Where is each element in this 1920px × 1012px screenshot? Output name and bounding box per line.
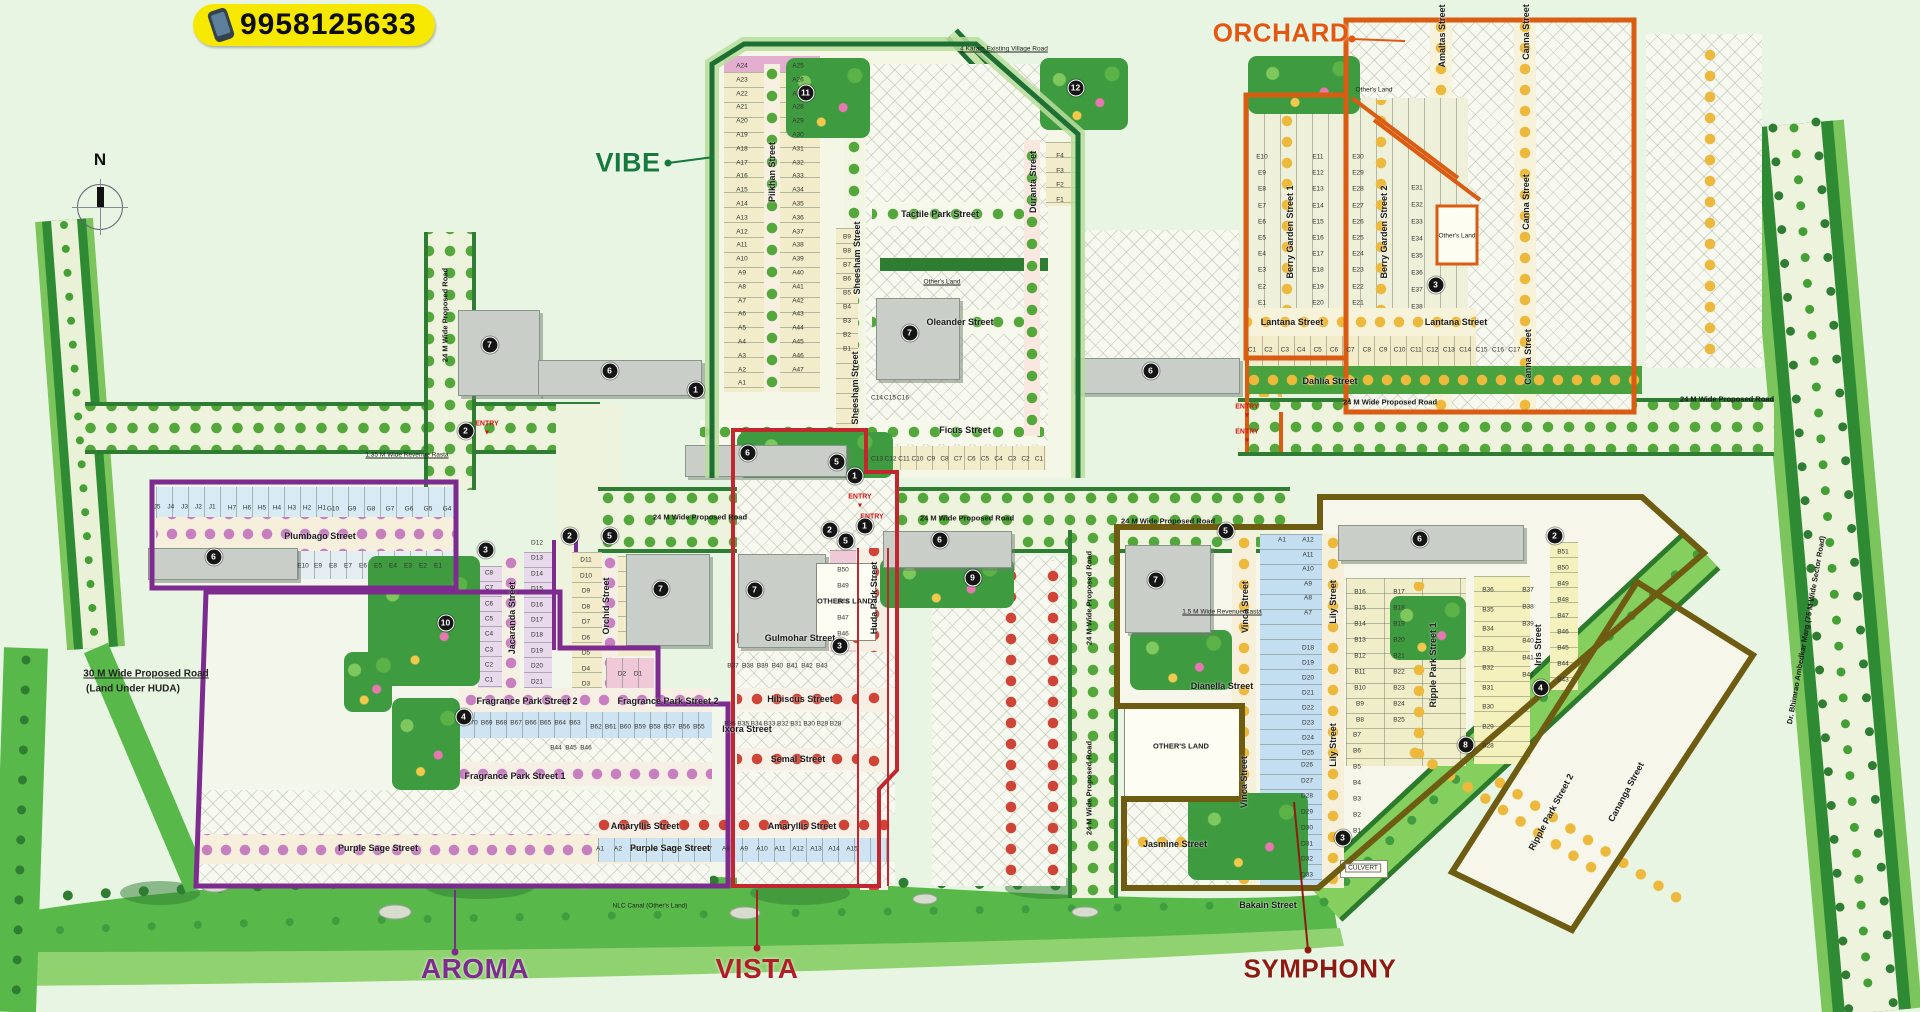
map-area: [1044, 560, 1062, 886]
plot-label: C16: [1492, 347, 1504, 354]
plot-label: A16: [736, 173, 748, 180]
plot-label: D7: [582, 619, 590, 626]
plot-label: E7: [344, 563, 352, 570]
plot-label: E20: [1312, 299, 1324, 306]
plot-label: E17: [1312, 251, 1324, 258]
map-area: [626, 554, 710, 646]
plot-label: E10: [1256, 154, 1268, 161]
plot-label: D17: [531, 617, 543, 624]
plot-label: E26: [1352, 218, 1364, 225]
plot-label: C4: [1297, 347, 1305, 354]
plot-label: B22: [1393, 669, 1405, 676]
street-label: Jasmine Street: [1143, 839, 1207, 849]
plot-label: D33: [1301, 871, 1313, 878]
plot-label: B30: [1482, 704, 1494, 711]
street-label: Dahlia Street: [1302, 376, 1357, 386]
plot-label: B2: [1353, 812, 1361, 819]
plot-label: A9: [1304, 580, 1312, 587]
plot-label: A15: [846, 846, 858, 853]
amenity-marker: 10: [437, 614, 454, 631]
plot-label: B38: [742, 663, 754, 670]
plot-label: B49: [1557, 581, 1569, 588]
plot-label: B47: [837, 615, 849, 622]
amenity-marker: 6: [1411, 530, 1428, 547]
street-label: Iris Street: [1533, 624, 1543, 666]
section-label-symphony: SYMPHONY: [1244, 954, 1397, 985]
plot-label: J4: [167, 504, 174, 511]
plot-label: B32: [1482, 665, 1494, 672]
plot-label: E5: [374, 563, 382, 570]
plot-label: H1: [318, 505, 326, 512]
plot-label: B59: [634, 724, 646, 731]
plot-label: C8: [485, 570, 493, 577]
entry-arrow-icon: ▼: [1244, 438, 1251, 445]
plot-label: F1: [1056, 197, 1064, 204]
plot-label: B28: [1482, 743, 1494, 750]
amenity-marker: 7: [652, 580, 669, 597]
plot-label: A13: [736, 214, 748, 221]
plot-label: F3: [1056, 167, 1064, 174]
plot-label: D11: [580, 557, 591, 564]
street-label: Jacaranda Street: [507, 582, 517, 655]
plot-label: D2: [618, 671, 626, 678]
plot-label: J1: [209, 504, 216, 511]
note-label: 30 M Wide Proposed Road: [83, 669, 208, 680]
amenity-marker: 3: [1427, 276, 1444, 293]
plot-label: B12: [1354, 653, 1366, 660]
plot-label: A8: [738, 283, 746, 290]
plot-label: B10: [1354, 685, 1366, 692]
plot-label: A1: [596, 846, 604, 853]
amenity-marker: 3: [831, 637, 848, 654]
plot-label: D22: [1302, 705, 1314, 712]
map-area: [1124, 704, 1240, 798]
plot-label: B17: [1393, 589, 1405, 596]
plot-label: B9: [1356, 701, 1364, 708]
plot-label: D29: [1301, 809, 1313, 816]
plot-label: D26: [1301, 762, 1313, 769]
map-area: [538, 360, 702, 396]
plot-label: A42: [792, 297, 804, 304]
plot-label: F2: [1056, 182, 1064, 189]
plot-label: B50: [1557, 565, 1569, 572]
plot-label: C4: [485, 631, 493, 638]
plot-label: C12: [1426, 347, 1438, 354]
plot-label: B37: [727, 663, 739, 670]
plot-label: D4: [582, 665, 590, 672]
plot-label: A45: [792, 339, 804, 346]
section-label-aroma: AROMA: [421, 953, 529, 985]
plot-label: A7: [1304, 609, 1312, 616]
plot-label: C1: [1248, 347, 1256, 354]
road-label: 24 M Wide Proposed Road: [1680, 395, 1774, 404]
plot-label: B4: [843, 304, 851, 311]
plot-label: D23: [1302, 720, 1314, 727]
plot-label: A11: [774, 846, 785, 853]
map-area: [1074, 358, 1240, 394]
plot-label: E1: [434, 563, 442, 570]
note-label: (Land Under HUDA): [86, 684, 180, 695]
plot-label: A36: [792, 214, 804, 221]
road-label: 24 M Wide Proposed Road: [653, 513, 747, 522]
plot-label: C4: [994, 456, 1002, 463]
plot-label: B18: [1393, 605, 1405, 612]
plot-label: C1: [485, 677, 493, 684]
plot-label: D18: [1302, 645, 1314, 652]
street-label: Plumbago Street: [284, 531, 356, 541]
street-label: Bakain Street: [1239, 900, 1297, 910]
amenity-marker: 7: [481, 336, 498, 353]
plot-label: B8: [843, 248, 851, 255]
plot-label: E2: [419, 563, 427, 570]
note-label: CULVERT: [1345, 864, 1381, 873]
plot-label: E23: [1352, 267, 1364, 274]
plot-label: E3: [1258, 267, 1266, 274]
street-label: Cananga Street: [1606, 761, 1646, 824]
amenity-marker: 8: [1457, 736, 1474, 753]
plot-label: B67: [510, 720, 522, 727]
plot-label: B3: [843, 318, 851, 325]
plot-label: B28: [830, 721, 842, 728]
plot-label: A29: [792, 118, 804, 125]
plot-label: B56: [678, 724, 690, 731]
road-label: Dr. Bhimrao Ambedkar Marg (75 M Wide Sec…: [1785, 535, 1827, 725]
street-label: Canna Street: [1523, 329, 1533, 385]
plot-label: B5: [843, 290, 851, 297]
note-label: 1.5 M Wide Revenue Rasta: [1182, 609, 1261, 616]
plot-label: C11: [898, 456, 909, 463]
plot-label: E4: [1258, 251, 1266, 258]
note-label: Other's Land: [1355, 87, 1392, 94]
plot-label: D19: [1302, 660, 1314, 667]
plot-label: A46: [792, 352, 804, 359]
street-label: Canna Street: [1521, 4, 1531, 60]
plot-label: C3: [1281, 347, 1289, 354]
plot-label: B68: [496, 720, 508, 727]
compass: N: [70, 150, 130, 260]
plot-label: A31: [792, 145, 804, 152]
entry-marker: ENTRY: [848, 494, 871, 501]
note-label: Other's Land: [923, 279, 960, 286]
street-label: Lily Street: [1328, 723, 1338, 767]
street-label: Fragrance Park Street 1: [464, 771, 565, 781]
plot-label: A12: [736, 228, 748, 235]
plot-label: B65: [540, 720, 552, 727]
plot-label: B4: [1353, 780, 1361, 787]
amenity-marker: 6: [601, 362, 618, 379]
plot-label: B13: [1354, 637, 1366, 644]
entry-marker: ENTRY: [475, 421, 498, 428]
plot-label: E22: [1352, 283, 1364, 290]
plot-label: D21: [1302, 690, 1314, 697]
plot-label: B58: [649, 724, 661, 731]
map-area: [148, 548, 298, 580]
plot-label: B24: [1393, 701, 1405, 708]
plot-label: B69: [481, 720, 493, 727]
plot-label: A14: [828, 846, 840, 853]
plot-label: B61: [605, 724, 617, 731]
plot-label: C8: [1363, 347, 1371, 354]
map-area: [606, 658, 654, 690]
plot-label: E8: [1258, 186, 1266, 193]
plot-label: C7: [954, 456, 962, 463]
entry-marker: ENTRY: [1235, 429, 1258, 436]
note-label: OTHER'S LAND: [816, 597, 874, 606]
phone-number: 9958125633: [240, 8, 417, 42]
plot-label: A5: [738, 325, 746, 332]
plot-label: D8: [582, 603, 590, 610]
plot-label: B36: [1482, 587, 1494, 594]
plot-label: B21: [1393, 653, 1405, 660]
plot-label: B7: [843, 262, 851, 269]
plot-label: A18: [736, 145, 748, 152]
plot-label: C10: [1394, 347, 1406, 354]
plot-label: E21: [1352, 299, 1364, 306]
amenity-marker: 6: [205, 548, 222, 565]
plot-label: A1: [1278, 537, 1286, 544]
plot-label: A7: [738, 297, 746, 304]
plot-label: B46: [580, 745, 592, 752]
plot-label: H7: [228, 505, 236, 512]
plot-label: C3: [1008, 456, 1016, 463]
map-area: [1125, 545, 1211, 633]
plot-label: C3: [485, 646, 493, 653]
plot-label: A32: [792, 159, 804, 166]
map-area: [458, 310, 540, 396]
map-area: [880, 258, 1048, 271]
plot-label: C7: [485, 585, 493, 592]
plot-label: B46: [1557, 629, 1569, 636]
plot-label: A24: [736, 63, 748, 70]
street-label: Lily Street: [1328, 580, 1338, 624]
plot-label: E33: [1411, 219, 1423, 226]
amenity-marker: 2: [457, 422, 474, 439]
plot-label: A4: [738, 339, 746, 346]
street-label: Amaltas Street: [1437, 4, 1447, 67]
plot-label: C2: [485, 661, 493, 668]
plot-label: B6: [843, 276, 851, 283]
plot-label: D15: [531, 586, 543, 593]
street-label: Vinca Street: [1239, 756, 1249, 808]
plot-label: A25: [792, 63, 804, 70]
plot-label: B44: [1557, 661, 1569, 668]
plot-label: B42: [801, 663, 813, 670]
plot-label: A20: [736, 118, 748, 125]
plot-label: G6: [405, 506, 414, 513]
plot-label: E10: [297, 563, 309, 570]
plot-label: B15: [1354, 605, 1366, 612]
phone-badge: 9958125633: [193, 4, 435, 46]
plot-label: E15: [1312, 218, 1324, 225]
plot-label: E27: [1352, 202, 1364, 209]
plot-label: E36: [1411, 270, 1423, 277]
plot-label: G10: [327, 506, 339, 513]
amenity-marker: 4: [1532, 679, 1549, 696]
plot-label: B29: [1482, 723, 1494, 730]
map-area: [344, 652, 392, 712]
plot-label: D9: [582, 588, 590, 595]
map-area: [198, 864, 710, 886]
plot-label: D14: [531, 570, 543, 577]
plot-label: C5: [485, 615, 493, 622]
plot-label: C7: [1346, 347, 1354, 354]
plot-label: D24: [1302, 735, 1314, 742]
plot-label: C8: [940, 456, 948, 463]
plot-label: A8: [1304, 595, 1312, 602]
street-label: Lantana Street: [1261, 317, 1324, 327]
plot-label: A14: [736, 201, 748, 208]
plot-label: B64: [554, 720, 566, 727]
street-label: Semal Street: [771, 754, 826, 764]
plot-label: B39: [757, 663, 769, 670]
plot-label: A2: [738, 366, 746, 373]
plot-label: B45: [565, 745, 577, 752]
plot-label: B14: [1354, 621, 1366, 628]
plot-label: B3: [1353, 796, 1361, 803]
plot-label: E11: [1312, 154, 1323, 161]
plot-label: G5: [424, 506, 433, 513]
plot-label: B25: [1393, 717, 1405, 724]
plot-label: E24: [1352, 251, 1364, 258]
plot-label: B6: [1353, 748, 1361, 755]
plot-label: A15: [736, 187, 748, 194]
amenity-marker: 2: [561, 527, 578, 544]
plot-label: A37: [792, 228, 804, 235]
amenity-marker: 3: [1334, 829, 1351, 846]
plot-label: E2: [1258, 283, 1266, 290]
plot-label: B8: [1356, 717, 1364, 724]
plot-label: A33: [792, 173, 804, 180]
plot-label: C9: [927, 456, 935, 463]
road-label: 24 M Wide Proposed Road: [1343, 398, 1437, 407]
plot-label: B34: [1482, 626, 1494, 633]
plot-label: B57: [664, 724, 676, 731]
map-area: [1700, 40, 1720, 364]
street-label: Duranta Street: [1028, 151, 1038, 213]
plot-label: A40: [792, 270, 804, 277]
plot-label: B30: [803, 721, 815, 728]
plot-label: A30: [792, 132, 804, 139]
plot-label: J5: [154, 504, 161, 511]
amenity-marker: 4: [455, 708, 472, 725]
amenity-marker: 3: [477, 541, 494, 558]
plot-label: A22: [736, 90, 748, 97]
plot-label: A1: [738, 380, 746, 387]
amenity-marker: 5: [1217, 522, 1234, 539]
entry-arrow-icon: ▼: [857, 503, 864, 510]
amenity-marker: 7: [901, 324, 918, 341]
section-label-vibe: VIBE: [595, 148, 660, 179]
street-label: Fragrance Park Street 2: [617, 696, 718, 706]
plot-label: D12: [531, 540, 543, 547]
plot-label: B62: [590, 724, 602, 731]
plot-label: A12: [792, 846, 804, 853]
amenity-marker: 11: [797, 84, 814, 101]
street-label: Fragrance Park Street 2: [476, 696, 577, 706]
road-label: 24 M Wide Proposed Road: [920, 514, 1014, 523]
amenity-marker: 6: [931, 531, 948, 548]
plot-label: C6: [485, 600, 493, 607]
plot-label: E29: [1352, 170, 1364, 177]
plot-label: C6: [1330, 347, 1338, 354]
note-label: OTHER'S LAND: [1152, 742, 1210, 751]
plot-label: C12: [885, 456, 897, 463]
street-label: Ixora Street: [722, 724, 772, 734]
plot-label: B66: [525, 720, 537, 727]
plot-label: C14: [1459, 347, 1471, 354]
plot-label: B43: [1557, 677, 1569, 684]
plot-label: E18: [1312, 267, 1324, 274]
plot-label: A10: [1302, 566, 1314, 573]
site-plan-map: 9958125633 N Plumbago StreetFragrance Pa…: [0, 0, 1920, 1012]
map-area: [392, 698, 460, 790]
road-label: 24 M Wide Proposed Road: [1085, 551, 1094, 645]
plot-label: C5: [981, 456, 989, 463]
entry-arrow-icon: ▼: [484, 430, 491, 437]
plot-label: E31: [1411, 185, 1423, 192]
plot-label: A28: [792, 104, 804, 111]
amenity-marker: 2: [1546, 527, 1563, 544]
street-label: Tactile Park Street: [901, 209, 979, 219]
plot-label: B16: [1354, 589, 1366, 596]
map-area: [156, 487, 454, 517]
map-area: [685, 445, 847, 477]
amenity-marker: 5: [601, 527, 618, 544]
plot-label: A8: [722, 846, 730, 853]
plot-label: A19: [736, 132, 748, 139]
plot-label: D27: [1301, 777, 1313, 784]
amenity-marker: 1: [687, 381, 704, 398]
plot-label: B20: [1393, 637, 1405, 644]
plot-label: C13: [871, 456, 883, 463]
plot-label: C14: [871, 395, 883, 402]
street-label: Vinca Street: [1240, 581, 1250, 633]
plot-label: D10: [580, 572, 592, 579]
plot-label: E38: [1411, 304, 1423, 311]
map-area: [737, 652, 895, 688]
plot-label: E32: [1411, 202, 1423, 209]
street-label: Berry Garden Street 2: [1379, 185, 1389, 278]
plot-label: J3: [181, 504, 188, 511]
map-area: [737, 862, 895, 886]
plot-label: C2: [1021, 456, 1029, 463]
plot-label: B5: [1353, 764, 1361, 771]
plot-label: G4: [443, 506, 452, 513]
map-area: [85, 402, 600, 454]
map-area: [764, 64, 780, 392]
amenity-marker: 6: [1142, 362, 1159, 379]
map-area: [1483, 768, 1693, 912]
plot-label: A9: [740, 846, 748, 853]
plot-label: A6: [738, 311, 746, 318]
amenity-marker: 2: [821, 521, 838, 538]
plot-label: B31: [1482, 684, 1494, 691]
plot-label: G7: [386, 506, 395, 513]
plot-label: C6: [967, 456, 975, 463]
street-label: Pilkhan Street: [767, 142, 777, 202]
map-area: [1338, 525, 1524, 561]
plot-label: G9: [348, 506, 357, 513]
plot-label: H2: [303, 505, 311, 512]
plot-label: B23: [1393, 685, 1405, 692]
plot-label: B49: [837, 583, 849, 590]
plot-label: E30: [1352, 154, 1364, 161]
road-label: 24 M Wide Proposed Road: [1085, 741, 1094, 835]
plot-label: C15: [884, 395, 896, 402]
plot-label: D1: [634, 671, 642, 678]
plot-label: C15: [1476, 347, 1488, 354]
plot-label: B44: [550, 745, 562, 752]
